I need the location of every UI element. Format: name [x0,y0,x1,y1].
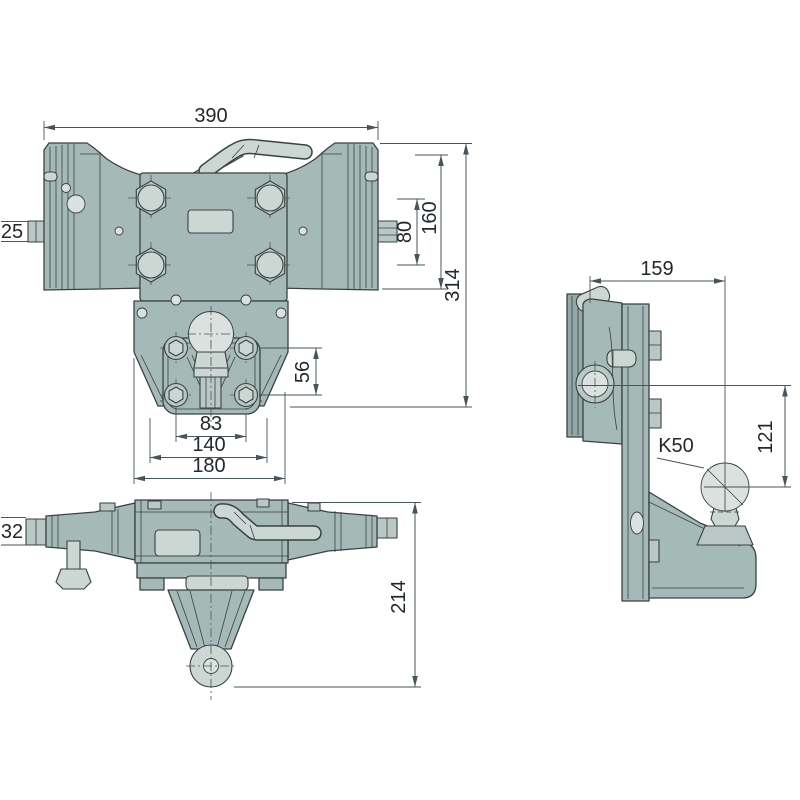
neck-hole [299,227,307,235]
pin-ring [67,195,85,213]
plate-hole [137,308,147,318]
plate-hole [276,308,286,318]
plan-tab [308,503,320,511]
plate-hole [171,295,181,305]
dim-text-83: 83 [200,413,222,435]
dim-text-56: 56 [292,361,314,383]
hitch-drawing-canvas: 390 25 80 160 314 56 [0,0,800,800]
dim-text-25: 25 [1,221,23,243]
plan-label-plate [155,530,200,556]
dim-text-160: 160 [419,201,441,234]
dim-text-390: 390 [194,105,227,127]
dim-text-159: 159 [640,258,673,280]
side-foot-bolt [649,540,659,562]
side-mount-plate [622,304,649,601]
plan-tab [148,501,161,509]
plate-hole [241,295,251,305]
dim-text-214: 214 [388,580,410,613]
plan-pin-head [56,569,91,589]
plan-tab [257,499,269,507]
dim-text-180: 180 [192,455,225,477]
dim-text-121: 121 [755,420,777,453]
side-plate-slot [631,512,644,534]
page-background [0,0,800,800]
right-latch-tab [365,172,378,181]
pin-hole-small [62,184,71,193]
plan-cover-strip [186,576,248,590]
ball-shaft-front [200,377,221,408]
plan-pin-stem [67,541,80,569]
side-bolt-lower [649,399,661,428]
left-latch-tab [44,172,57,181]
ball-base-side [697,526,753,545]
technical-drawing-page: 390 25 80 160 314 56 [0,0,800,800]
dim-text-314: 314 [442,268,464,301]
plan-tab [100,503,115,511]
dim-text-140: 140 [192,434,225,456]
dim-text-80: 80 [394,221,416,243]
type-label-plate [188,210,233,233]
ball-type-label: K50 [658,435,694,457]
plan-foot-right [259,578,283,590]
plan-foot-left [140,578,164,590]
dim-plan-pin-32: 32 [1,518,26,546]
side-knob-pin [607,350,636,367]
neck-hole [115,227,123,235]
dim-text-32: 32 [1,521,23,543]
left-stub-pin [28,221,45,242]
side-bolt-upper [649,331,661,360]
